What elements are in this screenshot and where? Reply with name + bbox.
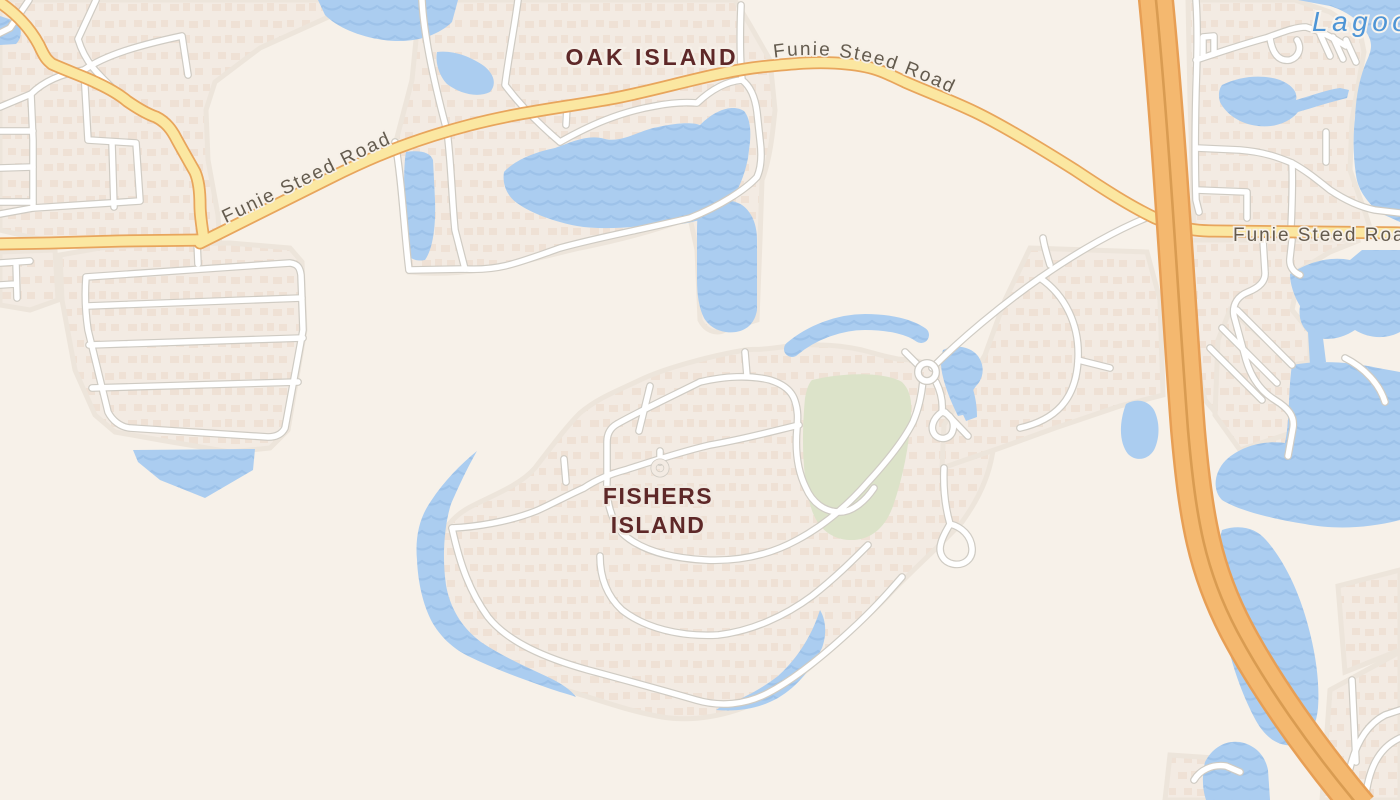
- svg-text:OAK ISLAND: OAK ISLAND: [565, 44, 738, 70]
- svg-text:FISHERS: FISHERS: [603, 483, 713, 509]
- svg-text:Lagoon: Lagoon: [1312, 6, 1400, 37]
- svg-text:ISLAND: ISLAND: [611, 512, 706, 538]
- svg-text:Funie Steed Road: Funie Steed Road: [1233, 225, 1400, 246]
